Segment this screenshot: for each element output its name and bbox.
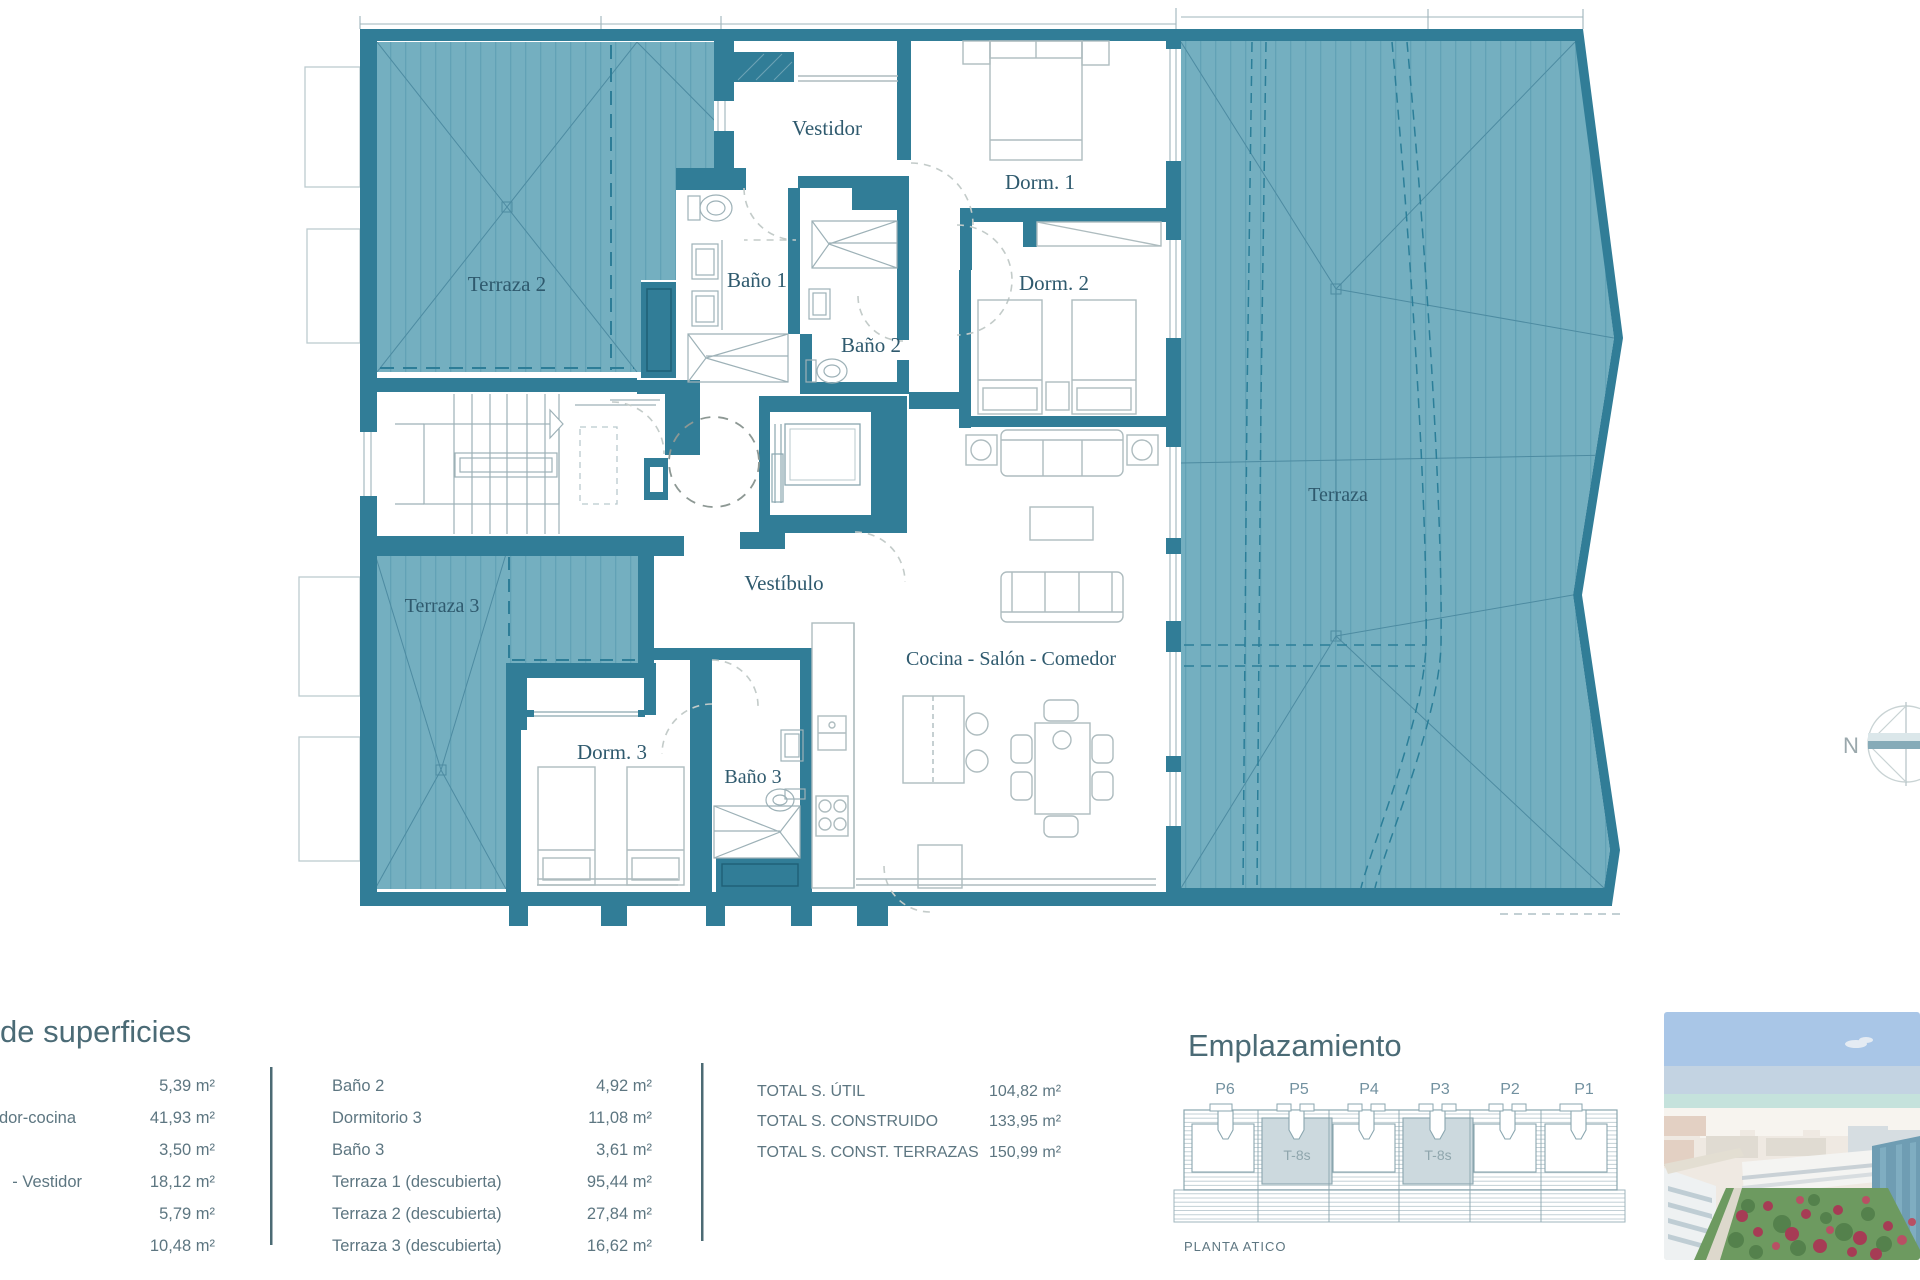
svg-text:Baño 2: Baño 2 [841, 333, 901, 357]
svg-text:3,50 m²: 3,50 m² [159, 1141, 215, 1159]
svg-text:N: N [1843, 733, 1859, 758]
svg-text:Dormitorio 3: Dormitorio 3 [332, 1109, 422, 1127]
svg-text:150,99 m²: 150,99 m² [989, 1144, 1062, 1161]
svg-text:Baño 1: Baño 1 [727, 268, 787, 292]
svg-text:dor-cocina: dor-cocina [0, 1109, 77, 1127]
svg-text:Dorm. 1: Dorm. 1 [1005, 170, 1075, 194]
svg-text:- Vestidor: - Vestidor [12, 1173, 82, 1191]
svg-text:T-8s: T-8s [1283, 1147, 1310, 1163]
svg-text:10,48 m²: 10,48 m² [150, 1237, 216, 1255]
svg-text:Dorm. 3: Dorm. 3 [577, 740, 647, 764]
svg-text:P4: P4 [1359, 1081, 1379, 1098]
svg-text:P3: P3 [1430, 1081, 1450, 1098]
svg-text:de superficies: de superficies [0, 1014, 191, 1049]
svg-text:3,61 m²: 3,61 m² [596, 1141, 652, 1159]
svg-text:TOTAL S. CONST. TERRAZAS: TOTAL S. CONST. TERRAZAS [757, 1144, 979, 1161]
svg-text:27,84 m²: 27,84 m² [587, 1205, 653, 1223]
svg-text:Terraza 3 (descubierta): Terraza 3 (descubierta) [332, 1237, 502, 1255]
svg-text:Cocina - Salón - Comedor: Cocina - Salón - Comedor [906, 648, 1116, 670]
svg-text:TOTAL S. CONSTRUIDO: TOTAL S. CONSTRUIDO [757, 1113, 938, 1130]
svg-text:104,82 m²: 104,82 m² [989, 1083, 1062, 1100]
svg-text:Terraza 2: Terraza 2 [468, 272, 546, 296]
svg-text:Terraza 3: Terraza 3 [405, 595, 480, 617]
svg-text:95,44 m²: 95,44 m² [587, 1173, 653, 1191]
svg-text:TOTAL S. ÚTIL: TOTAL S. ÚTIL [757, 1081, 865, 1100]
svg-text:PLANTA ATICO: PLANTA ATICO [1184, 1239, 1287, 1254]
svg-text:Dorm. 2: Dorm. 2 [1019, 271, 1089, 295]
svg-text:Baño 2: Baño 2 [332, 1077, 384, 1095]
svg-text:11,08 m²: 11,08 m² [588, 1109, 652, 1127]
svg-text:16,62 m²: 16,62 m² [587, 1237, 653, 1255]
svg-text:133,95 m²: 133,95 m² [989, 1113, 1062, 1130]
svg-text:18,12 m²: 18,12 m² [150, 1173, 216, 1191]
svg-text:Vestidor: Vestidor [792, 116, 862, 140]
svg-text:Baño 3: Baño 3 [332, 1141, 384, 1159]
svg-text:Baño 3: Baño 3 [724, 766, 781, 788]
svg-text:Vestíbulo: Vestíbulo [744, 571, 823, 595]
svg-text:T-8s: T-8s [1424, 1147, 1451, 1163]
svg-text:41,93 m²: 41,93 m² [150, 1109, 216, 1127]
svg-text:P2: P2 [1500, 1081, 1520, 1098]
svg-text:P1: P1 [1574, 1081, 1594, 1098]
svg-text:Terraza 2 (descubierta): Terraza 2 (descubierta) [332, 1205, 502, 1223]
svg-text:4,92 m²: 4,92 m² [596, 1077, 652, 1095]
svg-text:Terraza 1 (descubierta): Terraza 1 (descubierta) [332, 1173, 502, 1191]
svg-text:5,79 m²: 5,79 m² [159, 1205, 215, 1223]
svg-text:5,39 m²: 5,39 m² [159, 1077, 215, 1095]
svg-text:Emplazamiento: Emplazamiento [1188, 1028, 1402, 1063]
svg-text:P6: P6 [1215, 1081, 1235, 1098]
svg-text:P5: P5 [1289, 1081, 1309, 1098]
svg-text:Terraza: Terraza [1308, 484, 1368, 506]
